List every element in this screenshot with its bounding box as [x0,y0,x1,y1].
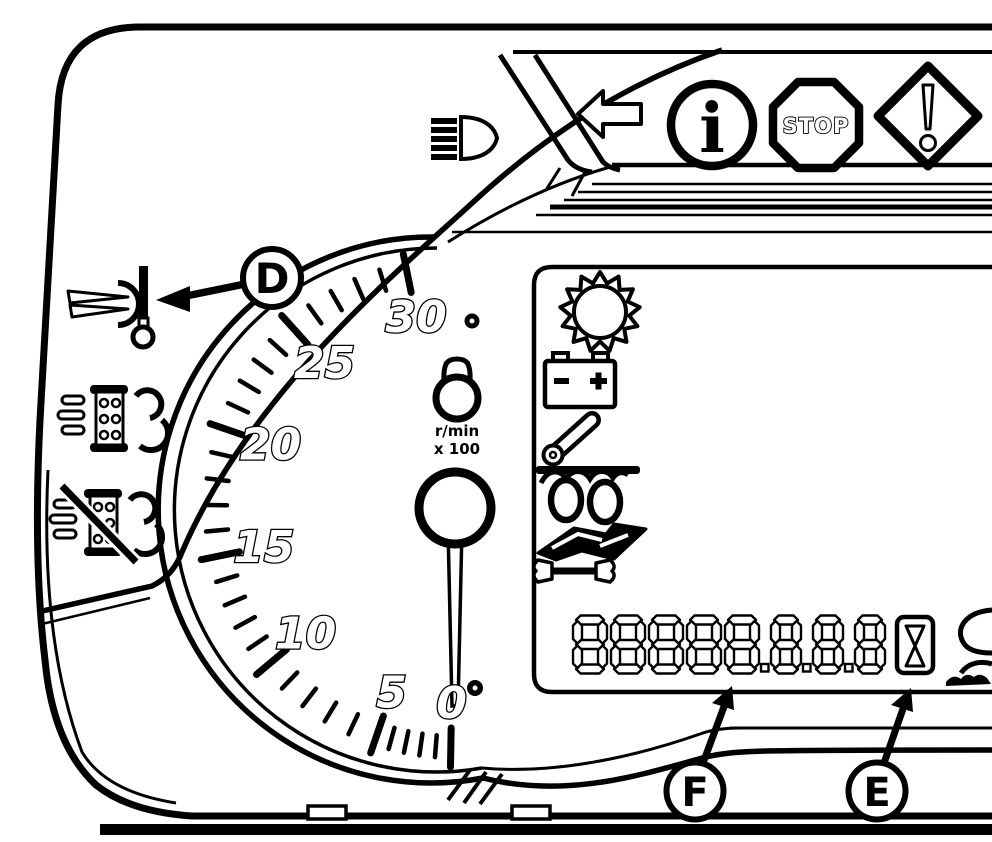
exclamation-dot [921,136,936,151]
dial-label-5: 5 [376,667,407,718]
info-glyph: i [699,89,725,169]
battery-plus-v [596,373,602,390]
seven-segment-digit [611,616,645,674]
dial-label-30: 30 [386,292,447,343]
decimal-point [761,664,769,672]
exclamation-bar [923,85,933,129]
seven-segment-digit [771,616,801,674]
dial-label-20: 20 [240,420,301,471]
tick-mark [206,529,228,531]
instrument-cluster-diagram: i STOP [0,0,992,842]
tick-mark [435,735,437,757]
scale-dot-zero-center [473,686,478,691]
seven-segment-digit [813,616,843,674]
dial-label-10: 10 [275,608,336,659]
seven-segment-digit [855,616,885,674]
scale-dot-max-center [470,319,475,324]
callout-e-label: E [863,770,890,816]
dial-label-15: 15 [233,522,294,573]
seven-segment-digit [573,616,607,674]
info-icon: i [671,84,753,169]
dial-label-25: 25 [294,338,355,389]
callout-f-label: F [681,770,708,816]
battery-minus [554,378,569,384]
stop-icon: STOP [773,82,859,168]
unit-label-line1: r/min [435,422,479,440]
button-notch-left [308,806,346,819]
battery-icon [545,353,615,407]
button-notch-right [512,806,550,819]
stop-label: STOP [783,114,850,138]
bottom-bezel-bar [100,824,992,835]
thermometer-stem [139,266,148,320]
seven-segment-digit [687,616,721,674]
unit-label-line2: x 100 [434,440,480,458]
decimal-point [803,664,811,672]
tick-mark [207,478,229,481]
tick-mark [419,734,422,756]
seven-segment-digit [649,616,683,674]
hourglass-icon [897,617,933,673]
callout-d-label: D [255,254,290,303]
pto-speed-symbol [436,359,478,419]
tick-mark [450,728,451,767]
thermometer-bulb [133,327,153,347]
dial-label-0: 0 [436,678,467,729]
needle-hub [419,472,491,544]
seven-segment-display [573,616,885,674]
decimal-point [845,664,853,672]
seven-segment-digit [725,616,759,674]
